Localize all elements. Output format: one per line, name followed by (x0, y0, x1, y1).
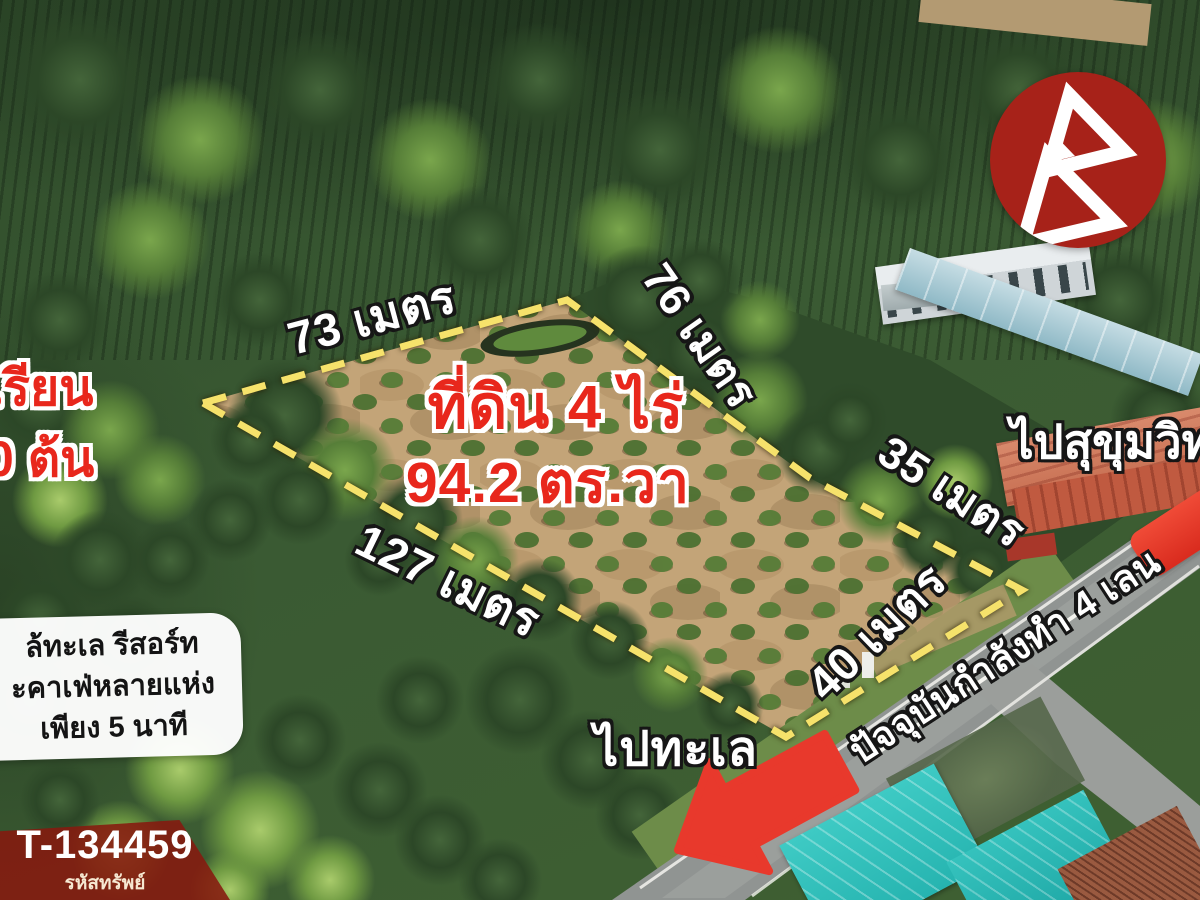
property-code: T-134459 (16, 823, 193, 868)
to-sea-label: ไปทะเล (594, 711, 758, 787)
property-code-label: รหัสทรัพย์ (65, 868, 146, 898)
aerial-photo: 73 เมตร 76 เมตร 35 เมตร 127 เมตร 40 เมตร… (0, 0, 1200, 900)
plot-size-subtitle: 94.2 ตร.วา (406, 438, 690, 528)
info-line-1: ล้ทะเล รีสอร์ท (0, 623, 199, 669)
brand-logo-icon (990, 72, 1166, 248)
info-line-2: ะคาเฟ่หลายแห่ง (0, 663, 215, 710)
left-red-text-line2: 0 ต้น (0, 420, 94, 499)
to-sukhumvit-label: ไปสุขุมวิท (1010, 404, 1200, 479)
info-line-3: เพียง 5 นาที (10, 705, 189, 751)
brand-logo (990, 72, 1166, 248)
nearby-info-box: ล้ทะเล รีสอร์ท ะคาเฟ่หลายแห่ง เพียง 5 นา… (0, 612, 244, 761)
left-red-text-line1: เรียน (0, 349, 93, 428)
